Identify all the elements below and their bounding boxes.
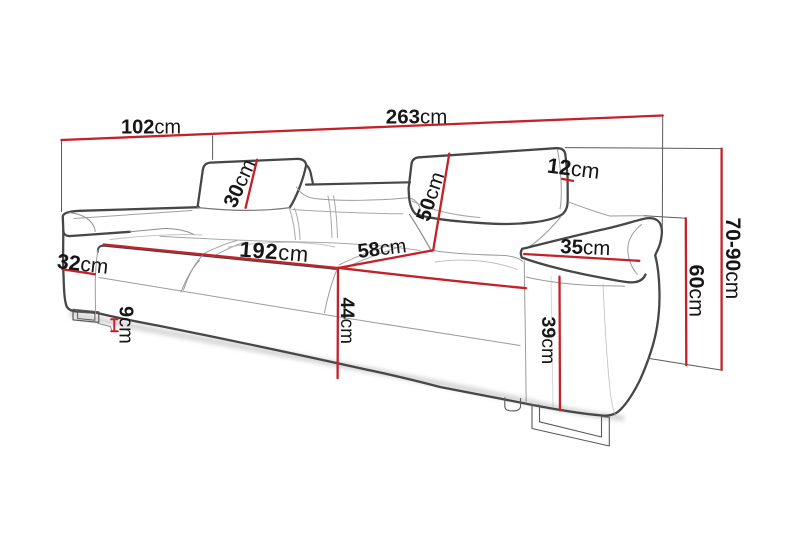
- svg-text:263cm: 263cm: [386, 106, 448, 129]
- svg-text:35cm: 35cm: [560, 235, 611, 260]
- svg-text:102cm: 102cm: [121, 117, 181, 139]
- svg-text:70-90cm: 70-90cm: [721, 218, 744, 300]
- svg-text:44cm: 44cm: [336, 298, 357, 344]
- svg-text:9cm: 9cm: [115, 306, 137, 344]
- svg-text:39cm: 39cm: [537, 317, 559, 365]
- svg-text:60cm: 60cm: [685, 265, 709, 318]
